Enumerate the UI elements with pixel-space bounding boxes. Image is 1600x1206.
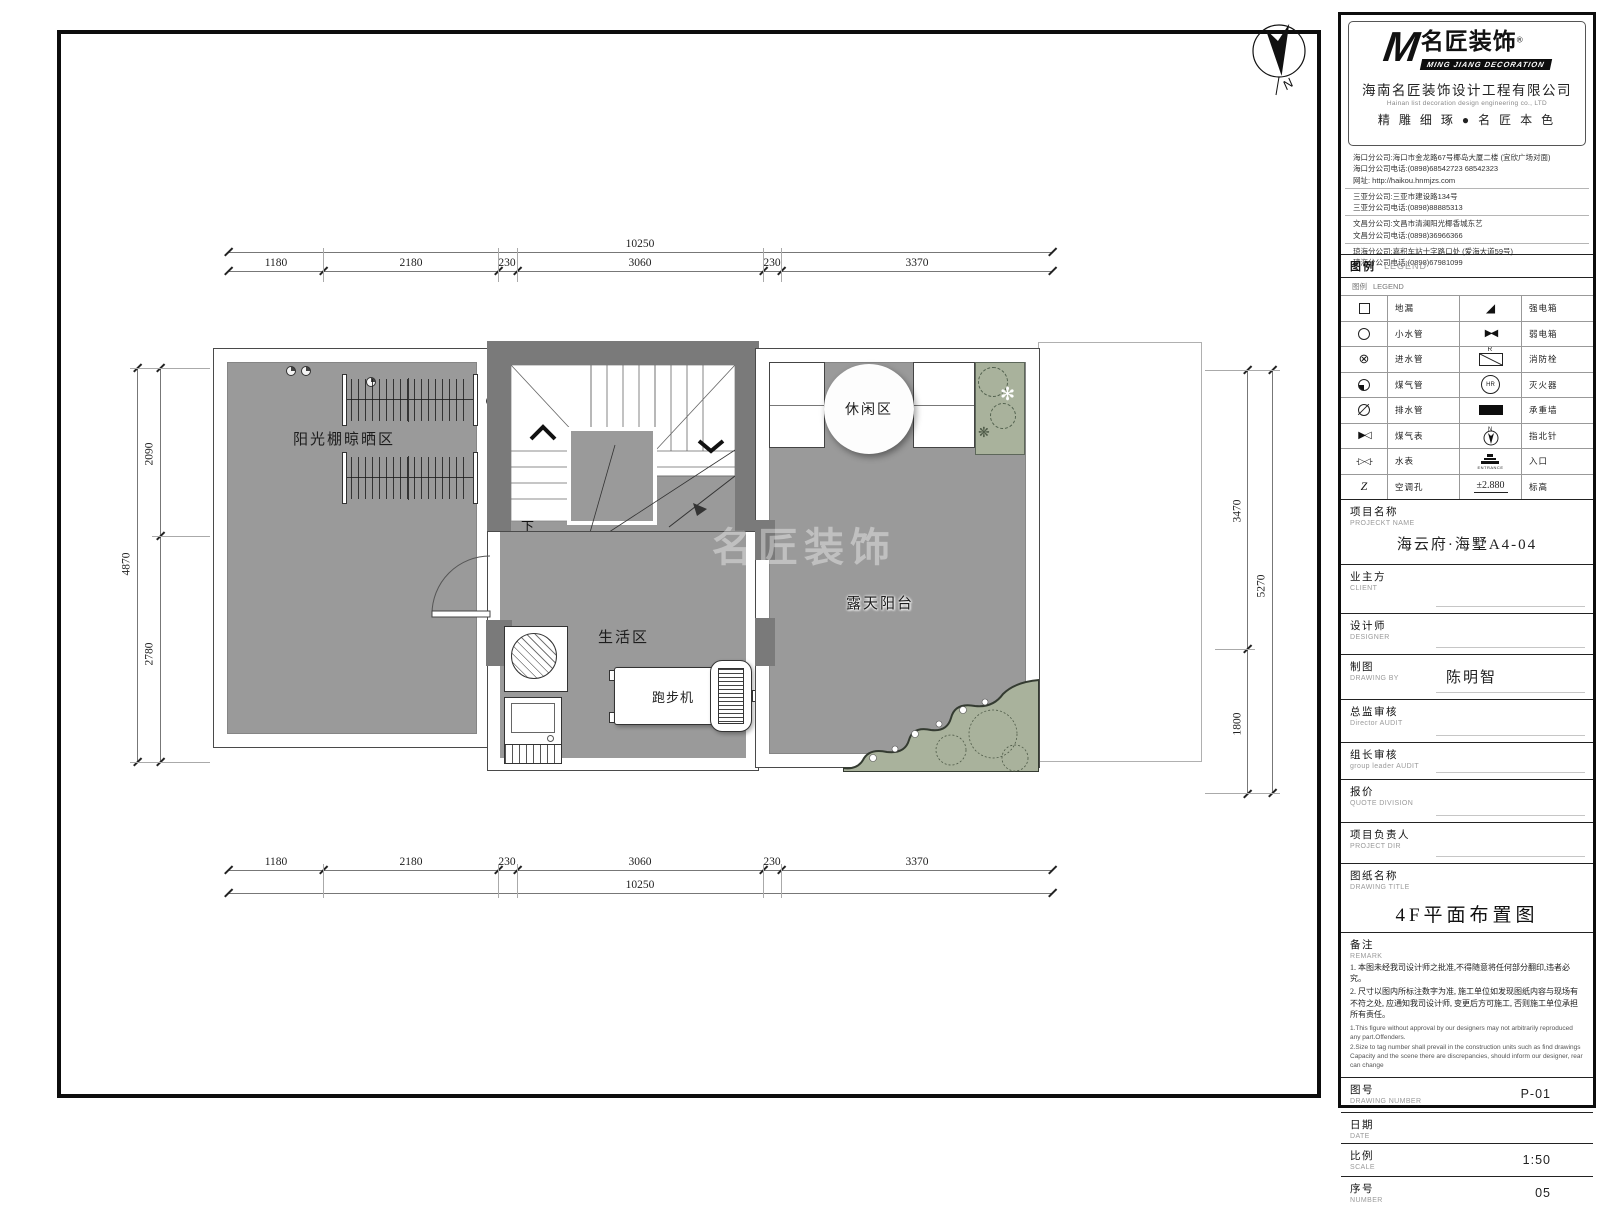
field-label-cn: 报价 <box>1350 784 1584 799</box>
legend-title-cn: 图例 <box>1350 258 1376 274</box>
legend-subtitle-en: LEGEND <box>1373 282 1404 291</box>
company-name-cn: 海南名匠装饰设计工程有限公司 <box>1349 79 1585 99</box>
field-label-en: PROJECKT NAME <box>1350 520 1584 527</box>
gas-pipe-icon <box>1358 379 1370 391</box>
dim-label: 3470 <box>1232 500 1244 523</box>
extension-line <box>517 864 518 898</box>
leisure-table: 休闲区 <box>824 364 914 454</box>
field-remark: 备注 REMARK 1. 本图未经我司设计师之批准,不得随意将任何部分翻印,违者… <box>1341 932 1593 1077</box>
bench-seat <box>913 362 975 448</box>
branch-haikou: 海口分公司:海口市金龙路67号椰岛大厦二楼 (宜欣广场对面) 海口分公司电话:(… <box>1345 150 1589 189</box>
legend-label: 入口 <box>1521 449 1593 474</box>
room-label-sunshed: 阳光棚晾晒区 <box>293 428 395 449</box>
svg-text:N: N <box>1488 427 1492 433</box>
branch-line: 文昌分公司电话:(0898)36966366 <box>1353 230 1581 241</box>
sheet-number-value: 05 <box>1535 1186 1551 1200</box>
shrub-icon: ✻ <box>1000 385 1015 403</box>
extension-line <box>517 248 518 282</box>
dim-line <box>228 893 1052 894</box>
extension-line <box>130 368 210 369</box>
field-label-cn: 图纸名称 <box>1350 868 1584 883</box>
entrance-icon: ENTRANCE <box>1477 453 1503 470</box>
field-label-cn: 项目名称 <box>1350 504 1584 519</box>
field-number: 序号 NUMBER 05 <box>1341 1176 1593 1206</box>
legend-row: 地漏 ◢ 强电箱 <box>1341 295 1593 321</box>
rack-post <box>342 374 347 426</box>
entrance-step <box>1487 454 1493 457</box>
drain-pipe-icon <box>1358 404 1370 416</box>
dim-label-bottom-total: 10250 <box>626 879 655 891</box>
drawing-title-value: 4F平面布置图 <box>1350 900 1584 927</box>
value-rule <box>1436 606 1585 607</box>
bench-line <box>770 405 824 406</box>
legend-subtitle-cn: 图例 <box>1352 281 1367 292</box>
legend-title-en: LEGEND <box>1384 261 1427 271</box>
remark-note-en: 1.This figure without approval by our de… <box>1350 1025 1584 1043</box>
legend-label: 空调孔 <box>1387 475 1459 500</box>
field-label-en: DESIGNER <box>1350 634 1584 641</box>
remark-note-en: 2.Size to tag number shall prevail in th… <box>1350 1044 1584 1070</box>
legend-label: 标高 <box>1521 475 1593 500</box>
dim-line <box>228 271 1052 272</box>
legend-label: 小水管 <box>1387 322 1459 347</box>
legend-row: ⊗ 进水管 R 消防栓 <box>1341 346 1593 372</box>
planter-box: ✻ ❋ <box>975 362 1025 455</box>
extension-line <box>498 248 499 282</box>
project-name-value: 海云府·海墅A4-04 <box>1350 533 1584 554</box>
field-label-en: group leader AUDIT <box>1350 763 1584 770</box>
legend-label: 进水管 <box>1387 347 1459 372</box>
logo-brand-cn: 名匠装饰 <box>1421 28 1517 54</box>
value-rule <box>1436 815 1585 816</box>
weak-power-box-icon: ▶◀ <box>1485 328 1496 339</box>
field-label-en: QUOTE DIVISION <box>1350 800 1584 807</box>
branch-line: 网址: http://haikou.hnmjzs.com <box>1353 175 1581 186</box>
extension-line <box>152 536 210 537</box>
ac-hole-icon: Z <box>1361 479 1368 494</box>
washer-door <box>511 703 555 733</box>
legend-row: 煤气管 HR 灭火器 <box>1341 372 1593 398</box>
legend-table: 图例 LEGEND 地漏 ◢ 强电箱 小水管 ▶◀ 弱电箱 ⊗ 进水管 R 消防… <box>1341 277 1593 499</box>
legend-row: 排水管 承重墙 <box>1341 397 1593 423</box>
title-block: M 名匠装饰® MING JIANG DECORATION 海南名匠装饰设计工程… <box>1338 12 1596 1108</box>
hydrant-letter: R <box>1488 347 1493 353</box>
field-label-en: DRAWING TITLE <box>1350 884 1584 891</box>
tree-canopy-icon <box>990 403 1016 429</box>
extension-line <box>323 248 324 282</box>
legend-label: 灭火器 <box>1521 373 1593 398</box>
extension-line <box>1205 793 1280 794</box>
field-label-cn: 设计师 <box>1350 618 1584 633</box>
field-label-en: CLIENT <box>1350 585 1584 592</box>
dim-label: 1180 <box>265 856 288 868</box>
hanging-clothes <box>351 457 469 499</box>
legend-label: 水表 <box>1387 449 1459 474</box>
washer-vent <box>504 744 562 764</box>
dim-line <box>228 870 1052 871</box>
remark-note-cn: 2. 尺寸以图内所标注数字为准, 施工单位如发现图纸内容与现场有不符之处, 应通… <box>1350 986 1584 1020</box>
value-rule <box>1436 692 1585 693</box>
scale-value: 1:50 <box>1523 1153 1551 1167</box>
company-name-en: Hainan list decoration design engineerin… <box>1349 100 1585 107</box>
legend-label: 排水管 <box>1387 398 1459 423</box>
dim-label: 1800 <box>1232 713 1244 736</box>
branch-sanya: 三亚分公司:三亚市建设路134号 三亚分公司电话:(0898)88885313 <box>1345 189 1589 217</box>
rack-post <box>342 452 347 504</box>
field-scale: 比例 SCALE 1:50 <box>1341 1143 1593 1176</box>
floor-drain-icon <box>301 366 311 376</box>
inlet-pipe-icon: ⊗ <box>1341 347 1387 372</box>
water-meter-icon: -▷◁- <box>1356 456 1372 467</box>
treadmill-label: 跑步机 <box>652 687 694 706</box>
dim-label: 3370 <box>906 257 929 269</box>
north-compass-icon: N <box>1482 425 1500 447</box>
dim-label: 3060 <box>629 856 652 868</box>
rack-post <box>473 374 478 426</box>
field-label-en: DATE <box>1350 1133 1584 1140</box>
extinguisher-letters: HR <box>1486 382 1495 388</box>
field-date: 日期 DATE <box>1341 1112 1593 1143</box>
wall-stub <box>755 618 775 666</box>
remark-note-cn: 1. 本图未经我司设计师之批准,不得随意将任何部分翻印,违者必究。 <box>1350 962 1584 984</box>
field-client: 业主方 CLIENT <box>1341 564 1593 613</box>
value-rule <box>1436 772 1585 773</box>
legend-row: 小水管 ▶◀ 弱电箱 <box>1341 321 1593 347</box>
dim-line <box>228 252 1052 253</box>
rack-post <box>473 452 478 504</box>
field-label-cn: 备注 <box>1350 937 1584 952</box>
field-label-en: PROJECT DIR <box>1350 843 1584 850</box>
field-project-dir: 项目负责人 PROJECT DIR <box>1341 822 1593 863</box>
field-drawing-by: 制图 DRAWING BY 陈明智 <box>1341 654 1593 699</box>
branch-addresses: 海口分公司:海口市金龙路67号椰岛大厦二楼 (宜欣广场对面) 海口分公司电话:(… <box>1341 150 1593 254</box>
room-label-leisure: 休闲区 <box>845 399 893 419</box>
shrub-icon: ❋ <box>978 425 990 439</box>
branch-line: 三亚分公司电话:(0898)88885313 <box>1353 202 1581 213</box>
field-drawing-number: 图号 DRAWING NUMBER P-01 <box>1341 1077 1593 1112</box>
floor-drain-icon <box>1359 303 1370 314</box>
north-arrow-icon: N <box>1246 20 1312 98</box>
legend-label: 煤气表 <box>1387 424 1459 449</box>
dim-label-left-total: 4870 <box>121 553 133 576</box>
dim-label-top-total: 10250 <box>626 238 655 250</box>
field-label-cn: 日期 <box>1350 1117 1584 1132</box>
legend-subheader: 图例 LEGEND <box>1341 278 1593 295</box>
field-label-cn: 总监审核 <box>1350 704 1584 719</box>
legend-label: 指北针 <box>1521 424 1593 449</box>
fire-extinguisher-icon: HR <box>1481 375 1500 394</box>
legend-label: 弱电箱 <box>1521 322 1593 347</box>
field-label-en: REMARK <box>1350 953 1584 960</box>
legend-label: 地漏 <box>1387 296 1459 321</box>
dim-label: 3370 <box>906 856 929 868</box>
room-label-terrace: 露天阳台 <box>846 592 914 613</box>
field-label-cn: 组长审核 <box>1350 747 1584 762</box>
legend-header: 图例 LEGEND <box>1341 254 1593 277</box>
logo-m-icon: M <box>1381 29 1421 65</box>
strong-power-box-icon: ◢ <box>1486 301 1495 315</box>
extension-line <box>1215 649 1255 650</box>
fire-hydrant-icon: R <box>1479 353 1503 366</box>
value-rule <box>1436 856 1585 857</box>
treadmill-belt <box>718 668 744 724</box>
extension-line <box>1205 370 1280 371</box>
value-rule <box>1436 647 1585 648</box>
elevation-mark-icon: ±2.880 <box>1474 480 1508 493</box>
branch-line: 三亚分公司:三亚市建设路134号 <box>1353 191 1581 202</box>
legend-label: 承重墙 <box>1521 398 1593 423</box>
field-leader-audit: 组长审核 group leader AUDIT <box>1341 742 1593 779</box>
extension-line <box>498 864 499 898</box>
extension-line <box>130 762 210 763</box>
gas-meter-icon: ▶◁ <box>1358 430 1369 441</box>
legend-label: 煤气管 <box>1387 373 1459 398</box>
drying-rack <box>342 452 478 504</box>
dim-label-right-total: 5270 <box>1256 575 1268 598</box>
washing-machine-icon <box>504 697 562 745</box>
extension-line <box>781 864 782 898</box>
extension-line <box>323 864 324 898</box>
drying-rack <box>342 374 478 426</box>
entrance-step <box>1481 461 1499 464</box>
hanging-clothes <box>351 379 469 421</box>
field-drawing-title: 图纸名称 DRAWING TITLE 4F平面布置图 <box>1341 863 1593 932</box>
sink-icon <box>511 633 557 679</box>
floor-drain-icon <box>286 366 296 376</box>
branch-line: 海口分公司:海口市金龙路67号椰岛大厦二楼 (宜欣广场对面) <box>1353 152 1581 163</box>
field-quote: 报价 QUOTE DIVISION <box>1341 779 1593 822</box>
dim-label: 2090 <box>144 443 156 466</box>
extension-line <box>781 248 782 282</box>
field-director-audit: 总监审核 Director AUDIT <box>1341 699 1593 742</box>
legend-row: -▷◁- 水表 ENTRANCE 入口 <box>1341 448 1593 474</box>
field-project-name: 项目名称 PROJECKT NAME 海云府·海墅A4-04 <box>1341 499 1593 564</box>
dim-line <box>1247 370 1248 794</box>
drain-slash <box>1358 404 1369 415</box>
field-label-en: Director AUDIT <box>1350 720 1584 727</box>
small-water-pipe-icon <box>1358 328 1370 340</box>
washer-knob <box>547 735 554 742</box>
bench-line <box>914 405 974 406</box>
legend-row: ▶◁ 煤气表 N 指北针 <box>1341 423 1593 449</box>
entrance-text: ENTRANCE <box>1477 465 1503 470</box>
load-bearing-wall-icon <box>1479 405 1503 415</box>
door-swing-left <box>428 552 492 618</box>
logo-brand-en: MING JIANG DECORATION <box>1420 59 1552 70</box>
field-designer: 设计师 DESIGNER <box>1341 613 1593 654</box>
garden-corner <box>843 672 1039 772</box>
room-label-living: 生活区 <box>598 626 649 647</box>
field-label-cn: 项目负责人 <box>1350 827 1584 842</box>
entrance-step <box>1484 458 1496 461</box>
dim-line <box>160 368 161 762</box>
dim-label: 2180 <box>400 257 423 269</box>
adjacent-roof-area <box>1038 342 1202 762</box>
company-logo-box: M 名匠装饰® MING JIANG DECORATION 海南名匠装饰设计工程… <box>1348 21 1586 146</box>
dim-line <box>1272 370 1273 794</box>
dim-label: 2180 <box>400 856 423 868</box>
north-letter: N <box>1280 75 1297 93</box>
dim-line <box>137 368 138 762</box>
extension-line <box>763 248 764 282</box>
legend-row: Z 空调孔 ±2.880 标高 <box>1341 474 1593 500</box>
drawing-by-value: 陈明智 <box>1446 666 1497 687</box>
treadmill: 跑步机 <box>612 660 752 732</box>
drawing-number-value: P-01 <box>1521 1087 1551 1101</box>
brand-watermark: 名匠装饰 <box>712 515 896 573</box>
branch-line: 海口分公司电话:(0898)68542723 68542323 <box>1353 163 1581 174</box>
branch-wenchang: 文昌分公司:文昌市清澜阳光椰香城东艺 文昌分公司电话:(0898)3696636… <box>1345 216 1589 244</box>
registered-mark: ® <box>1517 36 1523 45</box>
legend-label: 强电箱 <box>1521 296 1593 321</box>
company-slogan: 精 雕 细 琢 ● 名 匠 本 色 <box>1349 111 1585 128</box>
field-label-cn: 业主方 <box>1350 569 1584 584</box>
value-rule <box>1436 735 1585 736</box>
bench-seat <box>769 362 825 448</box>
legend-label: 消防栓 <box>1521 347 1593 372</box>
dim-label: 2780 <box>144 643 156 666</box>
dim-label: 1180 <box>265 257 288 269</box>
extension-line <box>763 864 764 898</box>
dim-label: 3060 <box>629 257 652 269</box>
branch-line: 文昌分公司:文昌市清澜阳光椰香城东艺 <box>1353 218 1581 229</box>
